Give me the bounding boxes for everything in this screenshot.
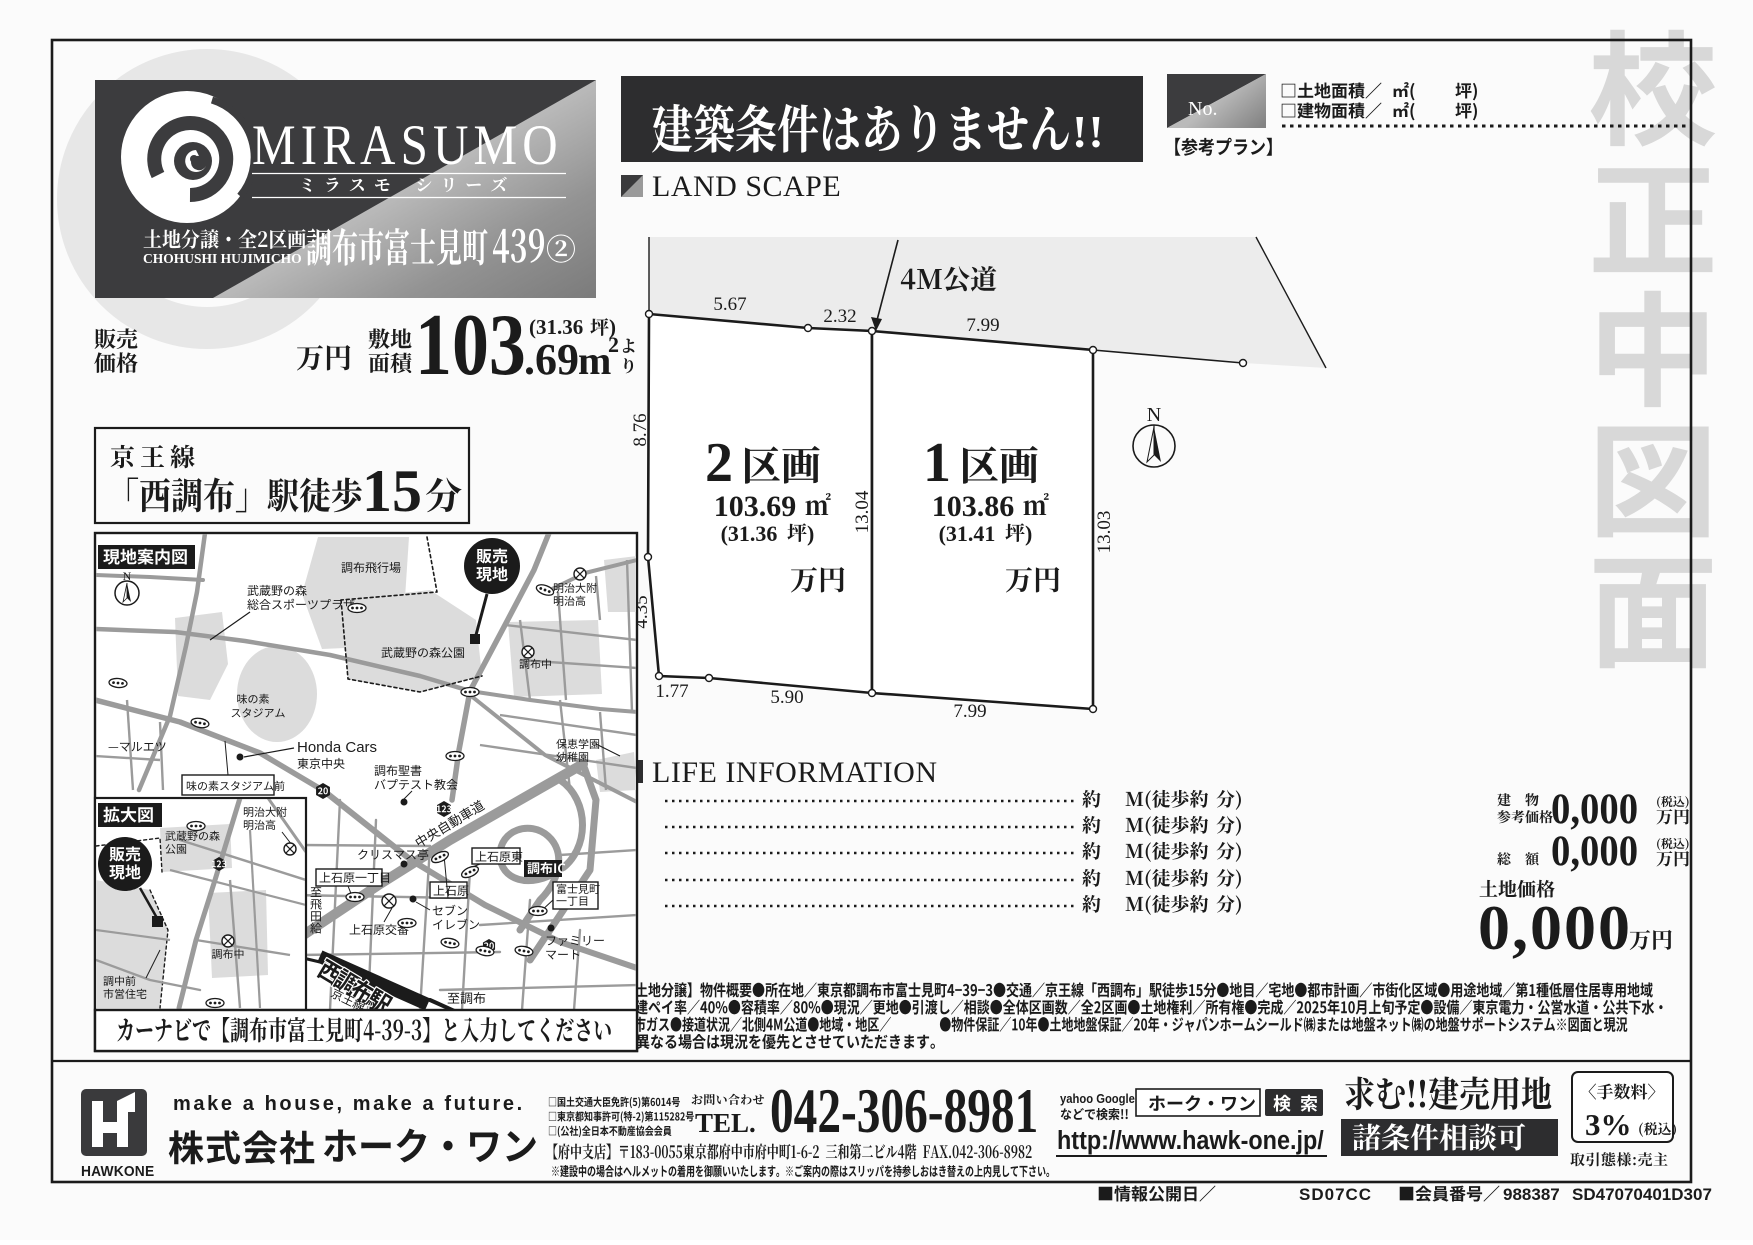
svg-text:7.99: 7.99: [953, 701, 986, 722]
svg-text:5.90: 5.90: [770, 687, 803, 708]
svg-text:(31.41: (31.41: [939, 521, 996, 546]
svg-text:CHOHUSHI HUJIMICHO: CHOHUSHI HUJIMICHO: [143, 251, 302, 266]
svg-text:103.86: 103.86: [932, 490, 1015, 523]
svg-text:2.32: 2.32: [823, 306, 856, 327]
svg-text:988387: 988387: [1503, 1185, 1560, 1204]
svg-text:SD07CC: SD07CC: [1299, 1185, 1372, 1204]
svg-text:http://www.hawk-one.jp/: http://www.hawk-one.jp/: [1057, 1127, 1324, 1155]
svg-text:0,000: 0,000: [1551, 785, 1638, 832]
svg-text:N: N: [1147, 404, 1161, 426]
svg-text:0,000: 0,000: [1478, 892, 1632, 963]
svg-text:No.: No.: [1188, 98, 1217, 120]
svg-text:7.99: 7.99: [966, 315, 999, 336]
svg-text:5.67: 5.67: [713, 294, 746, 315]
svg-text:8.76: 8.76: [630, 413, 651, 446]
svg-text:SD47070401D307: SD47070401D307: [1572, 1185, 1712, 1204]
svg-text:LIFE INFORMATION: LIFE INFORMATION: [652, 756, 938, 789]
svg-text:13.03: 13.03: [1094, 511, 1115, 554]
svg-text:TEL.: TEL.: [695, 1108, 756, 1138]
svg-text:): ): [609, 315, 616, 339]
svg-text:Honda Cars: Honda Cars: [297, 739, 377, 756]
svg-text:103: 103: [415, 296, 526, 393]
svg-text:yahoo Google: yahoo Google: [1060, 1091, 1135, 1106]
svg-text:103.69: 103.69: [714, 490, 797, 523]
svg-text:13.04: 13.04: [852, 490, 873, 533]
svg-text:(31.36: (31.36: [721, 521, 778, 546]
svg-text:): ): [1025, 521, 1032, 546]
svg-text:15: 15: [362, 458, 422, 524]
svg-text:HAWKONE: HAWKONE: [81, 1164, 155, 1181]
svg-text:): ): [807, 521, 814, 546]
svg-text:2: 2: [705, 432, 733, 494]
svg-text:.69: .69: [524, 335, 579, 384]
svg-text:0,000: 0,000: [1551, 827, 1638, 874]
svg-text:3%: 3%: [1585, 1107, 1632, 1142]
svg-text:m: m: [578, 338, 611, 383]
svg-text:!!: !!: [1072, 106, 1105, 157]
svg-text:MIRASUMO: MIRASUMO: [252, 115, 563, 177]
svg-text:1.77: 1.77: [655, 681, 688, 702]
svg-text:042-306-8981: 042-306-8981: [770, 1076, 1038, 1146]
svg-text:(31.36: (31.36: [529, 315, 583, 339]
svg-text:LAND SCAPE: LAND SCAPE: [652, 170, 841, 203]
svg-text:1: 1: [923, 432, 951, 494]
svg-text:make a house, make a future.: make a house, make a future.: [173, 1093, 525, 1115]
